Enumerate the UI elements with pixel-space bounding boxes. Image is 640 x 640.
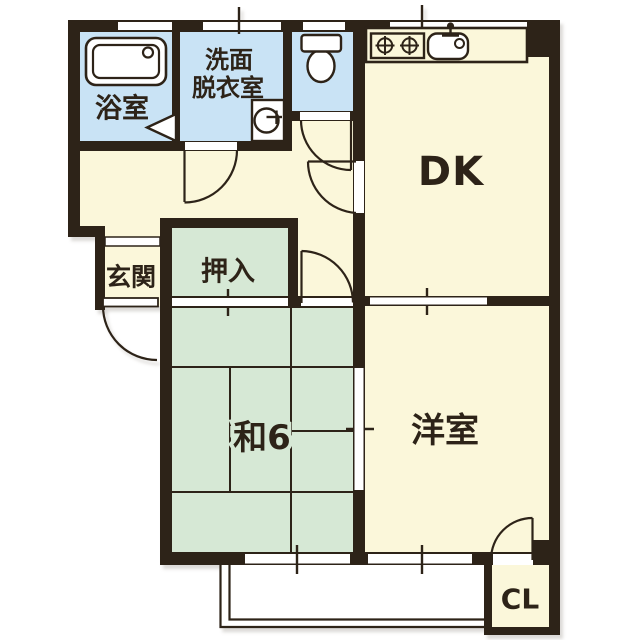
room-label-entrance: 玄関 (106, 263, 156, 292)
balcony (220, 565, 490, 628)
room-label-bathroom: 浴室 (95, 93, 149, 125)
room-label-washroom-line1: 洗面 (205, 46, 253, 74)
room-label-dk: DK (418, 149, 485, 195)
room-label-washroom-line2: 脱衣室 (192, 74, 264, 102)
window-bathroom (118, 22, 172, 30)
room-label-japanese-room: 和6 (233, 418, 291, 458)
slider-dk-western (370, 298, 487, 305)
room-label-oshiire: 押入 (201, 257, 255, 288)
slider-japanese-western (355, 368, 364, 490)
fusuma-oshiire (172, 298, 288, 306)
window-toilet (303, 22, 345, 30)
room-label-western-room: 洋室 (411, 411, 479, 451)
floor-plan-page: 浴室 洗面 脱衣室 DK 玄関 押入 和6 洋室 CL (0, 0, 640, 640)
window-washroom (203, 22, 281, 30)
bathtub-icon (86, 38, 166, 85)
washing-machine-icon (252, 100, 284, 141)
window-western-room (368, 554, 472, 564)
entrance-step (105, 237, 160, 246)
room-label-closet: CL (501, 583, 540, 616)
floor-plan-svg: 浴室 洗面 脱衣室 DK 玄関 押入 和6 洋室 CL (0, 0, 640, 640)
